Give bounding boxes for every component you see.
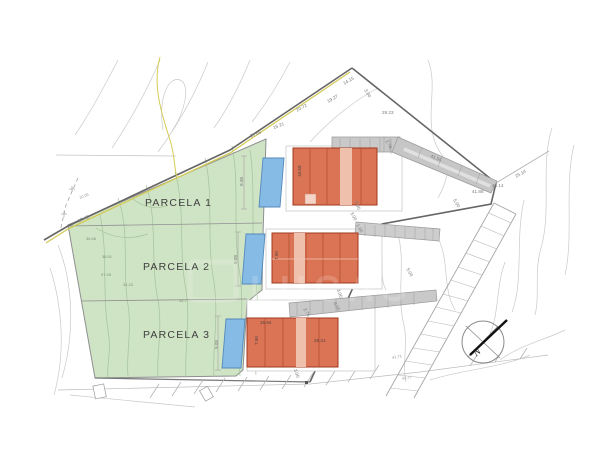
pool-3: [222, 319, 245, 368]
dim-label: 9.08: [214, 340, 219, 349]
dim-label: 5.00: [452, 198, 461, 209]
dim-label: 43.14: [492, 183, 504, 188]
watermark-text: LUCAS: [250, 268, 414, 309]
elevation-label: 36.51: [102, 254, 113, 259]
elevation-label: 34.23: [123, 282, 134, 287]
road-marker-box: [93, 384, 106, 399]
dim-label: 19.27: [326, 93, 339, 103]
parcel-3-label: PARCELA 3: [143, 329, 210, 341]
north-label: N: [471, 345, 485, 359]
dim-label: 10.05: [78, 192, 90, 200]
survey-cross-marks: [61, 186, 75, 217]
dim-label: 27.65: [249, 129, 262, 138]
dim-label: 3.00: [363, 88, 372, 99]
dim-label: 43.77: [402, 374, 413, 380]
dim-label: 29.23: [382, 110, 394, 115]
road-marker-box: [200, 386, 214, 401]
dim-label: 9.08: [239, 177, 244, 186]
dim-label: 18.58: [297, 165, 302, 177]
yellow-track-line: [157, 57, 177, 178]
site-plan-svg: 37.46 27.65 16.21 20.72 19.27 14.15 3.00…: [0, 0, 600, 450]
building-1-stair: [340, 148, 352, 205]
elevation-label: 34.7: [179, 298, 188, 303]
dim-label: 41.71: [392, 353, 403, 359]
corner-marker: [305, 381, 308, 384]
building-1-entry: [305, 194, 316, 204]
road-continuation: [496, 151, 549, 183]
dim-label: 41.88: [472, 189, 484, 194]
dim-label: 7.90: [274, 251, 279, 260]
building-1: [293, 148, 377, 205]
dim-label: 25.14: [514, 168, 527, 178]
pool-1: [259, 158, 284, 207]
building-3-stair: [296, 318, 306, 367]
dim-label: 14.15: [342, 75, 355, 85]
compass: N: [462, 320, 507, 363]
dim-label: 7.90: [254, 336, 259, 345]
elevation-label: 37.45: [101, 272, 112, 277]
dim-label: 29.21: [314, 338, 326, 343]
dim-label: 15.94: [260, 320, 272, 325]
site-plan-image: 37.46 27.65 16.21 20.72 19.27 14.15 3.00…: [0, 0, 600, 450]
dim-label: 3.00: [349, 211, 358, 222]
parcel-1-label: PARCELA 1: [145, 197, 212, 209]
elevation-label: 36.46: [86, 236, 97, 241]
